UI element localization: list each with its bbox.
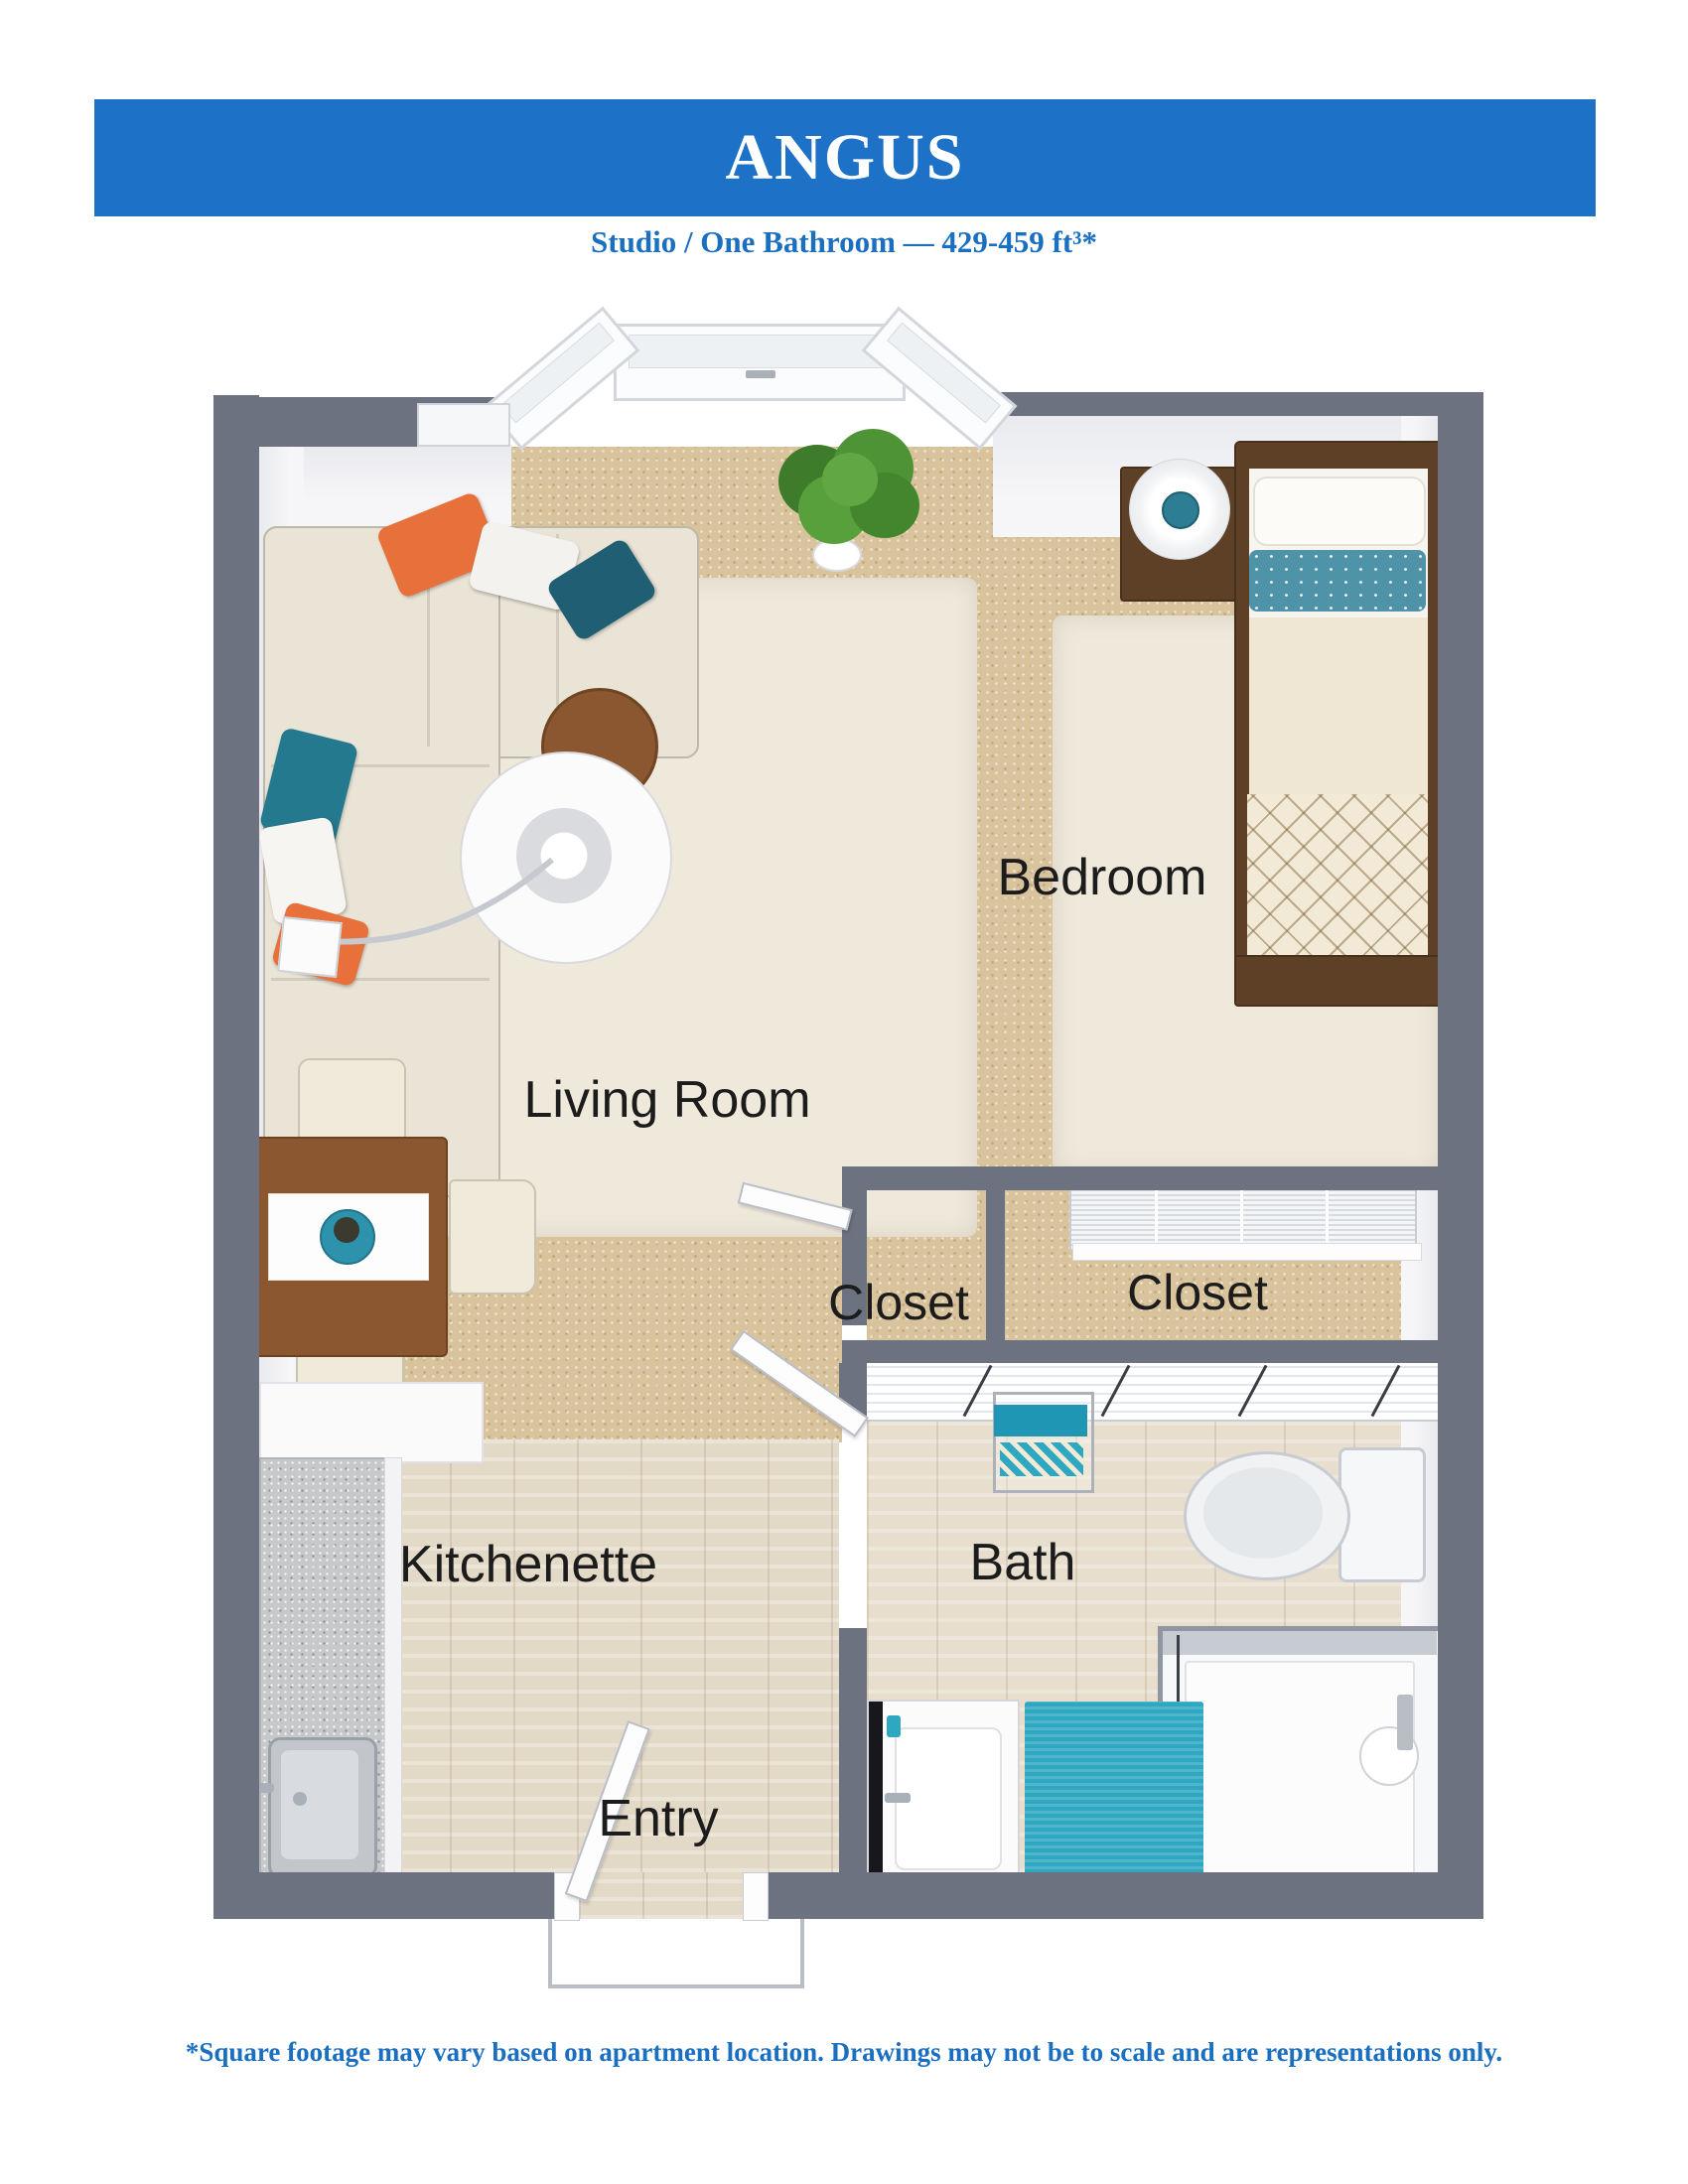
bed-pillow-white <box>1253 477 1426 546</box>
bed-blanket <box>1249 617 1428 796</box>
room-label-entry: Entry <box>598 1789 718 1848</box>
exterior-landing <box>548 1919 804 1988</box>
closet-door-track <box>1072 1243 1422 1261</box>
bed-pillow-teal-floral <box>1249 550 1426 612</box>
wall-bottom-right <box>745 1872 1483 1919</box>
bed-quilt <box>1247 794 1428 957</box>
soap-accent <box>887 1715 901 1737</box>
centerpiece-sprigs <box>334 1217 359 1243</box>
kitchen-sink <box>268 1737 377 1878</box>
shower-valve <box>1397 1695 1413 1750</box>
arc-lamp-base <box>277 916 343 978</box>
bath-rug <box>1025 1702 1203 1890</box>
floorplan: Bedroom Living Room Closet Closet Kitche… <box>0 0 1688 2184</box>
towel-rack <box>993 1392 1094 1493</box>
room-label-kitchenette: Kitchenette <box>399 1535 657 1594</box>
floorplan-page: ANGUS Studio / One Bathroom — 429-459 ft… <box>0 0 1688 2184</box>
kitchen-cabinet-face <box>384 1457 402 1876</box>
entry-door-jamb <box>743 1872 769 1921</box>
vanity-basin <box>895 1727 1002 1870</box>
bay-window-center <box>614 324 906 401</box>
kitchen-upper-cabinet <box>259 1382 484 1463</box>
room-label-bedroom: Bedroom <box>998 848 1207 907</box>
towel-teal <box>994 1405 1087 1436</box>
wall-closet-bottom <box>842 1340 1440 1363</box>
room-label-bath: Bath <box>970 1533 1076 1592</box>
dining-chair-top <box>298 1058 406 1142</box>
room-label-living-room: Living Room <box>523 1070 810 1130</box>
wall-left <box>213 395 259 1876</box>
bath-tile-wall <box>867 1363 1438 1422</box>
wall-bath-west-lower <box>839 1628 867 1874</box>
table-lamp-finial <box>1162 491 1199 529</box>
footer-disclaimer: *Square footage may vary based on apartm… <box>0 2037 1688 2068</box>
room-label-closet-left: Closet <box>828 1274 969 1331</box>
dining-chair-right <box>449 1179 536 1295</box>
vanity-faucet <box>885 1793 911 1803</box>
room-label-closet-right: Closet <box>1127 1264 1268 1321</box>
towel-patterned <box>1000 1442 1083 1476</box>
wall-bottom-left <box>213 1872 579 1919</box>
vanity-sink <box>867 1700 1020 1894</box>
wall-top-right <box>993 392 1483 416</box>
toilet-seat <box>1203 1467 1323 1559</box>
potted-plant <box>774 427 923 576</box>
wall-closet-divider <box>986 1166 1005 1345</box>
wall-right <box>1438 392 1483 1919</box>
window-top-left-wall <box>417 403 510 447</box>
bed-footboard <box>1234 955 1446 1007</box>
toilet-tank <box>1338 1447 1426 1582</box>
wall-closet-top <box>842 1166 1440 1190</box>
